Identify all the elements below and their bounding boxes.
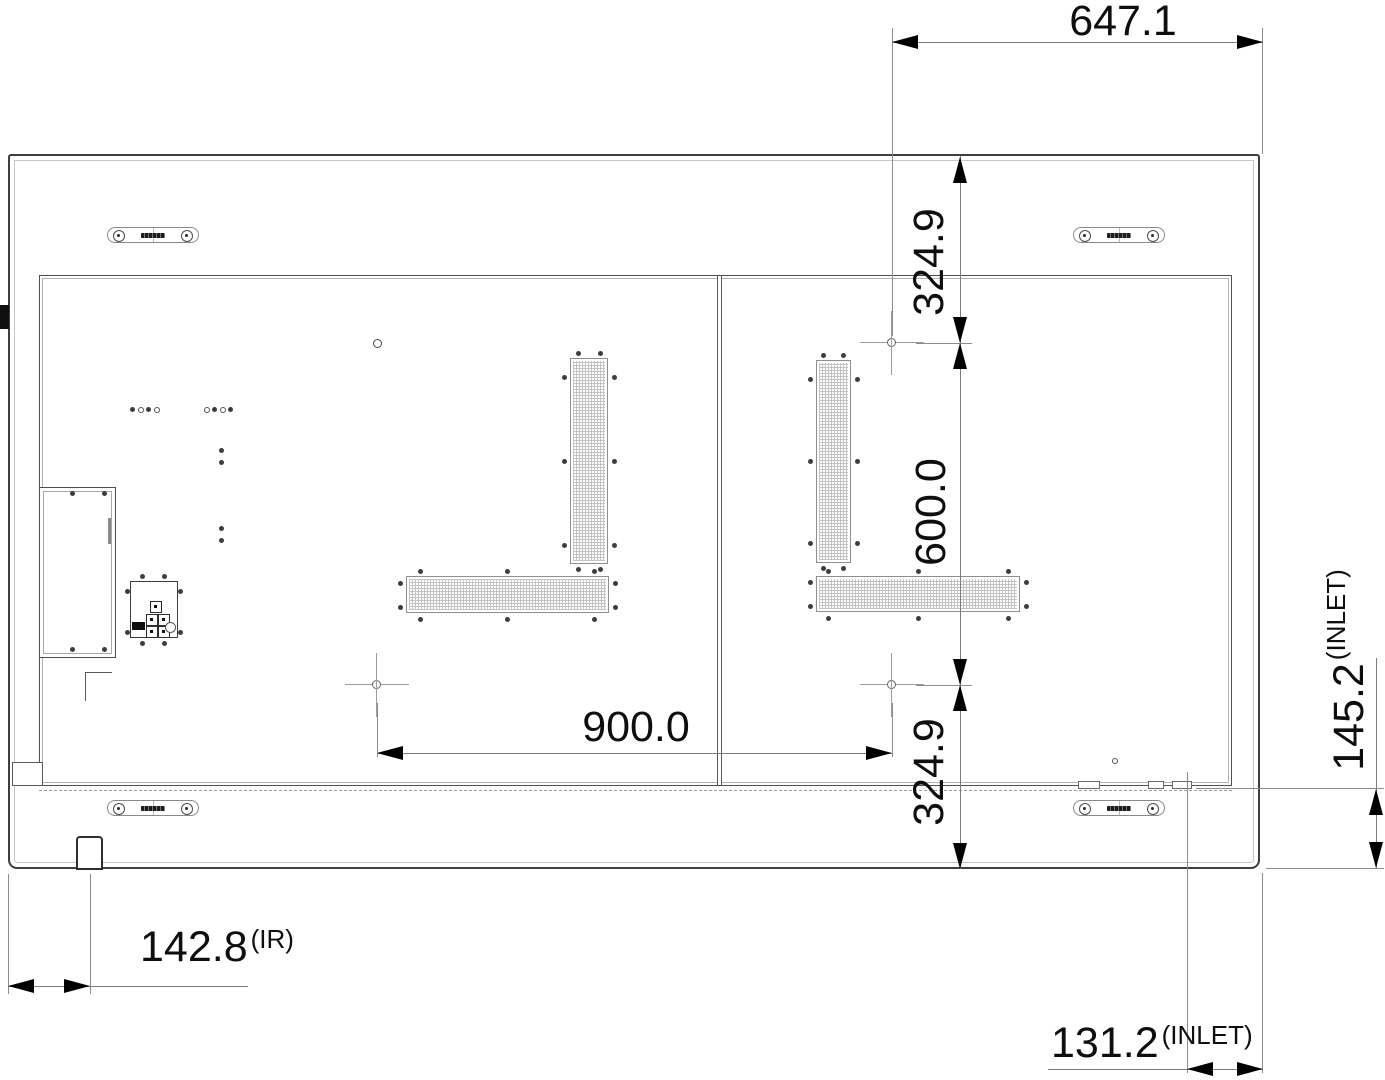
screw-hole-dot bbox=[1006, 569, 1011, 574]
arrowhead-icon bbox=[8, 979, 34, 993]
arrowhead-icon bbox=[892, 35, 918, 49]
screw-hole-dot bbox=[219, 448, 224, 453]
screw-hole-dot bbox=[613, 605, 618, 610]
brand-mark bbox=[1107, 233, 1131, 238]
screw-hole-dot bbox=[505, 569, 510, 574]
vent-grille-horizontal-left bbox=[406, 576, 609, 613]
small-hole bbox=[1112, 758, 1118, 764]
screw-hole-dot bbox=[1024, 604, 1029, 609]
dim-top-width-label: 647.1 bbox=[1038, 0, 1208, 43]
terminal-bay bbox=[39, 487, 116, 658]
inlet-suffix: (INLET) bbox=[1162, 1020, 1253, 1050]
bottom-left-notch bbox=[12, 762, 43, 786]
dimension-line-mount-width bbox=[377, 753, 892, 754]
arrowhead-icon bbox=[1369, 842, 1383, 868]
arrowhead-icon bbox=[1369, 789, 1383, 815]
extension-line bbox=[1196, 788, 1384, 789]
brand-mark bbox=[1107, 806, 1131, 811]
dim-inlet-side-offset-label: 131.2(INLET) bbox=[1051, 1022, 1253, 1065]
screw-hole-dot bbox=[841, 566, 846, 571]
jog-button-icon bbox=[146, 614, 158, 626]
screw-hole-dot bbox=[70, 647, 75, 652]
screw-hole-dot bbox=[855, 459, 860, 464]
handle-screw-icon bbox=[1147, 230, 1159, 242]
arrowhead-icon bbox=[953, 659, 967, 685]
screw-hole-dot bbox=[808, 541, 813, 546]
screw-hole-dot bbox=[612, 543, 617, 548]
mounting-handle-top-right bbox=[1073, 227, 1165, 243]
screw-hole-dot bbox=[418, 569, 423, 574]
screw-hole-dot bbox=[592, 617, 597, 622]
control-button-cluster bbox=[130, 581, 178, 638]
screw-hole-dot bbox=[162, 574, 167, 579]
arrowhead-icon bbox=[953, 843, 967, 869]
screw-hole-dot bbox=[125, 589, 130, 594]
mounting-handle-bottom-right bbox=[1073, 800, 1165, 816]
sensor-circle-icon bbox=[165, 622, 176, 633]
screw-hole-dot bbox=[808, 580, 813, 585]
vesa-hole-top-left bbox=[373, 339, 382, 348]
bay-slot bbox=[108, 518, 111, 544]
ir-suffix: (IR) bbox=[251, 924, 294, 954]
extension-line bbox=[892, 28, 893, 336]
screw-hole-dot bbox=[154, 407, 160, 413]
screw-hole-dot bbox=[140, 641, 145, 646]
arrowhead-icon bbox=[953, 317, 967, 343]
screw-hole-dot bbox=[598, 567, 603, 572]
screw-hole-dot bbox=[219, 538, 224, 543]
extension-line bbox=[892, 703, 893, 757]
hole-center-icon bbox=[887, 680, 896, 689]
screw-hole-dot bbox=[178, 630, 183, 635]
screw-hole-dot bbox=[613, 581, 618, 586]
mounting-handle-bottom-left bbox=[107, 800, 199, 816]
arrowhead-icon bbox=[64, 979, 90, 993]
screw-hole-dot bbox=[841, 353, 846, 358]
dim-mount-width-label: 900.0 bbox=[561, 706, 711, 749]
inlet-suffix: (INLET) bbox=[1323, 569, 1349, 660]
vent-grille-vertical-right bbox=[816, 360, 851, 563]
screw-hole-dot bbox=[70, 491, 75, 496]
handle-screw-icon bbox=[113, 803, 125, 815]
screw-hole-dot bbox=[855, 377, 860, 382]
screw-hole-dot bbox=[219, 460, 224, 465]
mounting-handle-top-left bbox=[107, 227, 199, 243]
screw-hole-dot bbox=[576, 351, 581, 356]
extension-line bbox=[8, 874, 9, 994]
mesh-pattern bbox=[573, 361, 605, 561]
dim-mount-top-offset-label: 324.9 bbox=[859, 239, 999, 285]
screw-hole-dot bbox=[598, 351, 603, 356]
screw-hole-dot bbox=[140, 574, 145, 579]
handle-screw-icon bbox=[1147, 803, 1159, 815]
screw-hole-dot bbox=[212, 407, 217, 412]
screw-hole-dot bbox=[916, 616, 921, 621]
screw-hole-dot bbox=[102, 647, 107, 652]
dim-inlet-height-label: 145.2(INLET) bbox=[1254, 644, 1385, 696]
dim-ir-offset-label: 142.8(IR) bbox=[140, 926, 294, 969]
handle-screw-icon bbox=[113, 230, 125, 242]
screw-hole-dot bbox=[1006, 616, 1011, 621]
jog-button-icon bbox=[150, 601, 162, 613]
screw-hole-dot bbox=[1024, 580, 1029, 585]
arrowhead-icon bbox=[953, 157, 967, 183]
extension-line bbox=[1266, 868, 1384, 869]
handle-screw-icon bbox=[181, 230, 193, 242]
side-tab bbox=[0, 305, 9, 329]
extension-line bbox=[90, 874, 91, 994]
hole-center-icon bbox=[887, 338, 896, 347]
ir-window-icon bbox=[132, 622, 145, 630]
screw-hole-dot bbox=[562, 459, 567, 464]
screw-hole-dot bbox=[592, 569, 597, 574]
screw-hole-dot bbox=[162, 641, 167, 646]
screw-hole-dot bbox=[562, 375, 567, 380]
screw-hole-dot bbox=[826, 616, 831, 621]
ir-sensor-box bbox=[76, 836, 103, 870]
brand-mark bbox=[141, 233, 165, 238]
screw-hole-dot bbox=[808, 459, 813, 464]
handle-screw-icon bbox=[181, 803, 193, 815]
screw-hole-dot bbox=[220, 407, 226, 413]
screw-hole-dot bbox=[102, 491, 107, 496]
screw-hole-dot bbox=[398, 605, 403, 610]
bottom-port bbox=[1148, 781, 1164, 789]
bottom-port bbox=[1172, 781, 1192, 789]
screw-hole-dot bbox=[505, 617, 510, 622]
screw-hole-dot bbox=[418, 617, 423, 622]
screw-hole-dot bbox=[612, 375, 617, 380]
dimension-line-ir-offset bbox=[8, 986, 248, 987]
screw-hole-dot bbox=[855, 541, 860, 546]
brand-mark bbox=[141, 806, 165, 811]
technical-drawing-canvas: 647.1 324.9 600.0 324.9 900.0 145.2(INLE… bbox=[0, 0, 1385, 1080]
arrowhead-icon bbox=[953, 685, 967, 711]
screw-hole-dot bbox=[138, 407, 144, 413]
screw-hole-dot bbox=[219, 526, 224, 531]
jog-button-icon bbox=[146, 626, 158, 638]
arrowhead-icon bbox=[1237, 35, 1263, 49]
screw-hole-dot bbox=[808, 377, 813, 382]
bottom-port bbox=[1078, 781, 1100, 789]
screw-hole-dot bbox=[612, 459, 617, 464]
dimension-line-inlet-side-offset bbox=[1048, 1069, 1263, 1070]
screw-hole-dot bbox=[808, 604, 813, 609]
center-seam bbox=[717, 276, 722, 785]
screw-hole-dot bbox=[228, 407, 233, 412]
arrowhead-icon bbox=[377, 746, 403, 760]
dim-mount-height-label: 600.0 bbox=[861, 489, 1001, 535]
mesh-pattern bbox=[819, 363, 848, 560]
hidden-edge-dashed-line bbox=[39, 790, 1232, 791]
screw-hole-dot bbox=[821, 353, 826, 358]
arrowhead-icon bbox=[866, 746, 892, 760]
vent-grille-vertical-left bbox=[570, 358, 608, 564]
arrowhead-icon bbox=[953, 343, 967, 369]
screw-hole-dot bbox=[178, 589, 183, 594]
screw-hole-dot bbox=[125, 630, 130, 635]
screw-hole-dot bbox=[130, 407, 135, 412]
screw-hole-dot bbox=[576, 567, 581, 572]
screw-hole-dot bbox=[821, 566, 826, 571]
hole-center-icon bbox=[372, 680, 381, 689]
mesh-pattern bbox=[819, 579, 1017, 609]
screw-hole-dot bbox=[398, 581, 403, 586]
screw-hole-dot bbox=[562, 543, 567, 548]
handle-screw-icon bbox=[1079, 230, 1091, 242]
screw-hole-dot bbox=[146, 407, 151, 412]
corner-bracket-mark bbox=[85, 672, 112, 701]
mesh-pattern bbox=[409, 579, 606, 610]
screw-hole-dot bbox=[826, 569, 831, 574]
extension-line bbox=[1262, 873, 1263, 1073]
screw-hole-dot bbox=[204, 407, 210, 413]
handle-screw-icon bbox=[1079, 803, 1091, 815]
